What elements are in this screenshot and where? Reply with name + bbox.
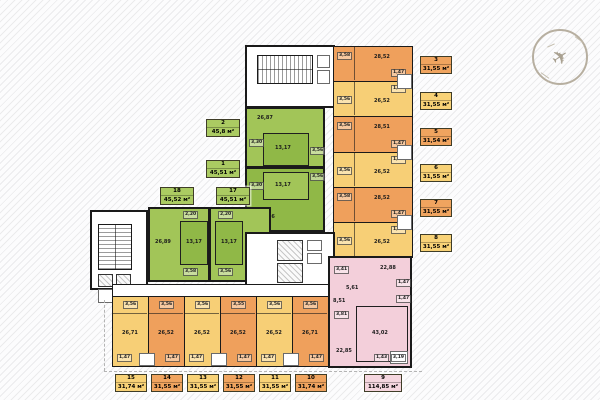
unit-tag-5[interactable]: 531,54 м²: [420, 128, 452, 146]
shaft-box: [397, 74, 412, 89]
unit-tag-8[interactable]: 831,55 м²: [420, 234, 452, 252]
floor-plan: ✈ 3,58 28,52 1,47 3,56 26,52 1,47 3,56 2…: [0, 0, 600, 400]
room-h2-area: 5,61: [346, 285, 358, 291]
room-h3-area: 3,81: [334, 311, 349, 319]
unit-tag-7[interactable]: 731,55 м²: [420, 199, 452, 217]
unit-tag-12[interactable]: 1231,55 м²: [223, 374, 255, 392]
room-bedroom-area: 13,17: [275, 145, 291, 151]
room-r2-area: 43,02: [372, 330, 388, 336]
room-living-area: 26,87: [257, 115, 273, 121]
room-bath-area: 1,47: [237, 354, 252, 362]
unit-tag-4[interactable]: 431,55 м²: [420, 92, 452, 110]
room-main-area: 26,52: [194, 330, 210, 336]
elevator: [277, 263, 303, 283]
room-h1-area: 2,20: [218, 211, 233, 219]
room-h2-area: 3,56: [310, 147, 325, 155]
shaft-box: [211, 353, 227, 366]
room-main-area: 28,52: [374, 195, 390, 201]
room-hall-area: 3,58: [337, 52, 352, 60]
room-h1-area: 3,41: [334, 266, 349, 274]
room-hall-area: 3,56: [159, 301, 174, 309]
unit-tag-10[interactable]: 1031,74 м²: [295, 374, 327, 392]
shaft-box: [307, 253, 322, 264]
shaft-box: [317, 70, 330, 84]
shaft-box: [397, 145, 412, 160]
room-bath-area: 1,47: [165, 354, 180, 362]
unit-tag-11[interactable]: 1131,55 м²: [259, 374, 291, 392]
shaft-box: [283, 353, 299, 366]
room-bath-area: 1,47: [261, 354, 276, 362]
room-hall-area: 3,56: [303, 301, 318, 309]
room-bedroom-area: 13,17: [275, 182, 291, 188]
room-bath-area: 1,47: [189, 354, 204, 362]
unit-tag-18[interactable]: 1845,52 м²: [160, 187, 194, 205]
unit-tag-15[interactable]: 1531,74 м²: [115, 374, 147, 392]
room-hall-area: 3,58: [337, 193, 352, 201]
stair-core-top: [245, 45, 335, 108]
room-hall-area: 3,56: [123, 301, 138, 309]
room-hall-area: 3,56: [337, 96, 352, 104]
apartment-2[interactable]: 26,87 13,17 3,30 3,56: [245, 107, 325, 168]
room-hall-area: 3,56: [267, 301, 282, 309]
room-hall-area: 3,56: [337, 237, 352, 245]
room-main-area: 26,71: [122, 330, 138, 336]
shaft-box: [397, 215, 412, 230]
room-bath-area: 1,47: [117, 354, 132, 362]
room-living-area: 26,89: [155, 239, 171, 245]
room-b2-area: 1,47: [396, 295, 411, 303]
room-main-area: 26,52: [158, 330, 174, 336]
room-main-area: 26,52: [374, 98, 390, 104]
unit-tag-13[interactable]: 1331,55 м²: [187, 374, 219, 392]
room-h1-area: 2,20: [183, 211, 198, 219]
room-bedroom-area: 13,17: [221, 239, 237, 245]
room-bedroom-area: 13,17: [186, 239, 202, 245]
unit-tag-17[interactable]: 1745,51 м²: [216, 187, 250, 205]
apartment-18[interactable]: 26,89 13,17 2,20 3,58: [148, 207, 210, 282]
room-hall-area: 3,56: [337, 122, 352, 130]
room-h1-area: 3,30: [249, 139, 264, 147]
room-main-area: 26,52: [374, 239, 390, 245]
room-h2-area: 3,58: [183, 268, 198, 276]
unit-tag-14[interactable]: 1431,55 м²: [151, 374, 183, 392]
unit-tag-9[interactable]: 9114,85 м²: [364, 374, 402, 392]
shaft-box: [307, 240, 322, 251]
room-main-area: 26,52: [266, 330, 282, 336]
apartment-9[interactable]: 3,41 22,88 1,47 1,47 5,61 8,51 3,81 43,0…: [328, 256, 412, 368]
room-bath-area: 1,47: [309, 354, 324, 362]
elevator: [277, 240, 303, 261]
compass-icon: ✈: [532, 29, 588, 85]
room-hall-area: 3,56: [337, 167, 352, 175]
room-hall-area: 3,55: [231, 301, 246, 309]
unit-tag-6[interactable]: 631,55 м²: [420, 164, 452, 182]
room-b1-area: 1,47: [396, 279, 411, 287]
room-main-area: 28,52: [374, 54, 390, 60]
room-r3-area: 22,85: [336, 348, 352, 354]
room-main-area: 26,52: [230, 330, 246, 336]
shaft-box: [317, 55, 330, 68]
room-loggia-area: 3,19: [391, 354, 406, 362]
unit-tag-1[interactable]: 145,51 м²: [206, 160, 240, 178]
room-main-area: 26,52: [374, 169, 390, 175]
room-h2-area: 3,56: [310, 173, 325, 181]
room-b3-area: 1,43: [374, 354, 389, 362]
room-hall-area: 8,51: [333, 298, 345, 304]
unit-tag-3[interactable]: 331,55 м²: [420, 56, 452, 74]
unit-tag-2[interactable]: 245,8 м²: [206, 119, 240, 137]
stair-core-left: [90, 210, 148, 290]
room-r1-area: 22,88: [380, 265, 396, 271]
shaft-box: [139, 353, 155, 366]
elevator: [98, 274, 113, 287]
room-h2-area: 3,56: [218, 268, 233, 276]
room-hall-area: 3,56: [195, 301, 210, 309]
room-main-area: 28,51: [374, 124, 390, 130]
room-main-area: 26,71: [302, 330, 318, 336]
room-h1-area: 3,30: [249, 182, 264, 190]
